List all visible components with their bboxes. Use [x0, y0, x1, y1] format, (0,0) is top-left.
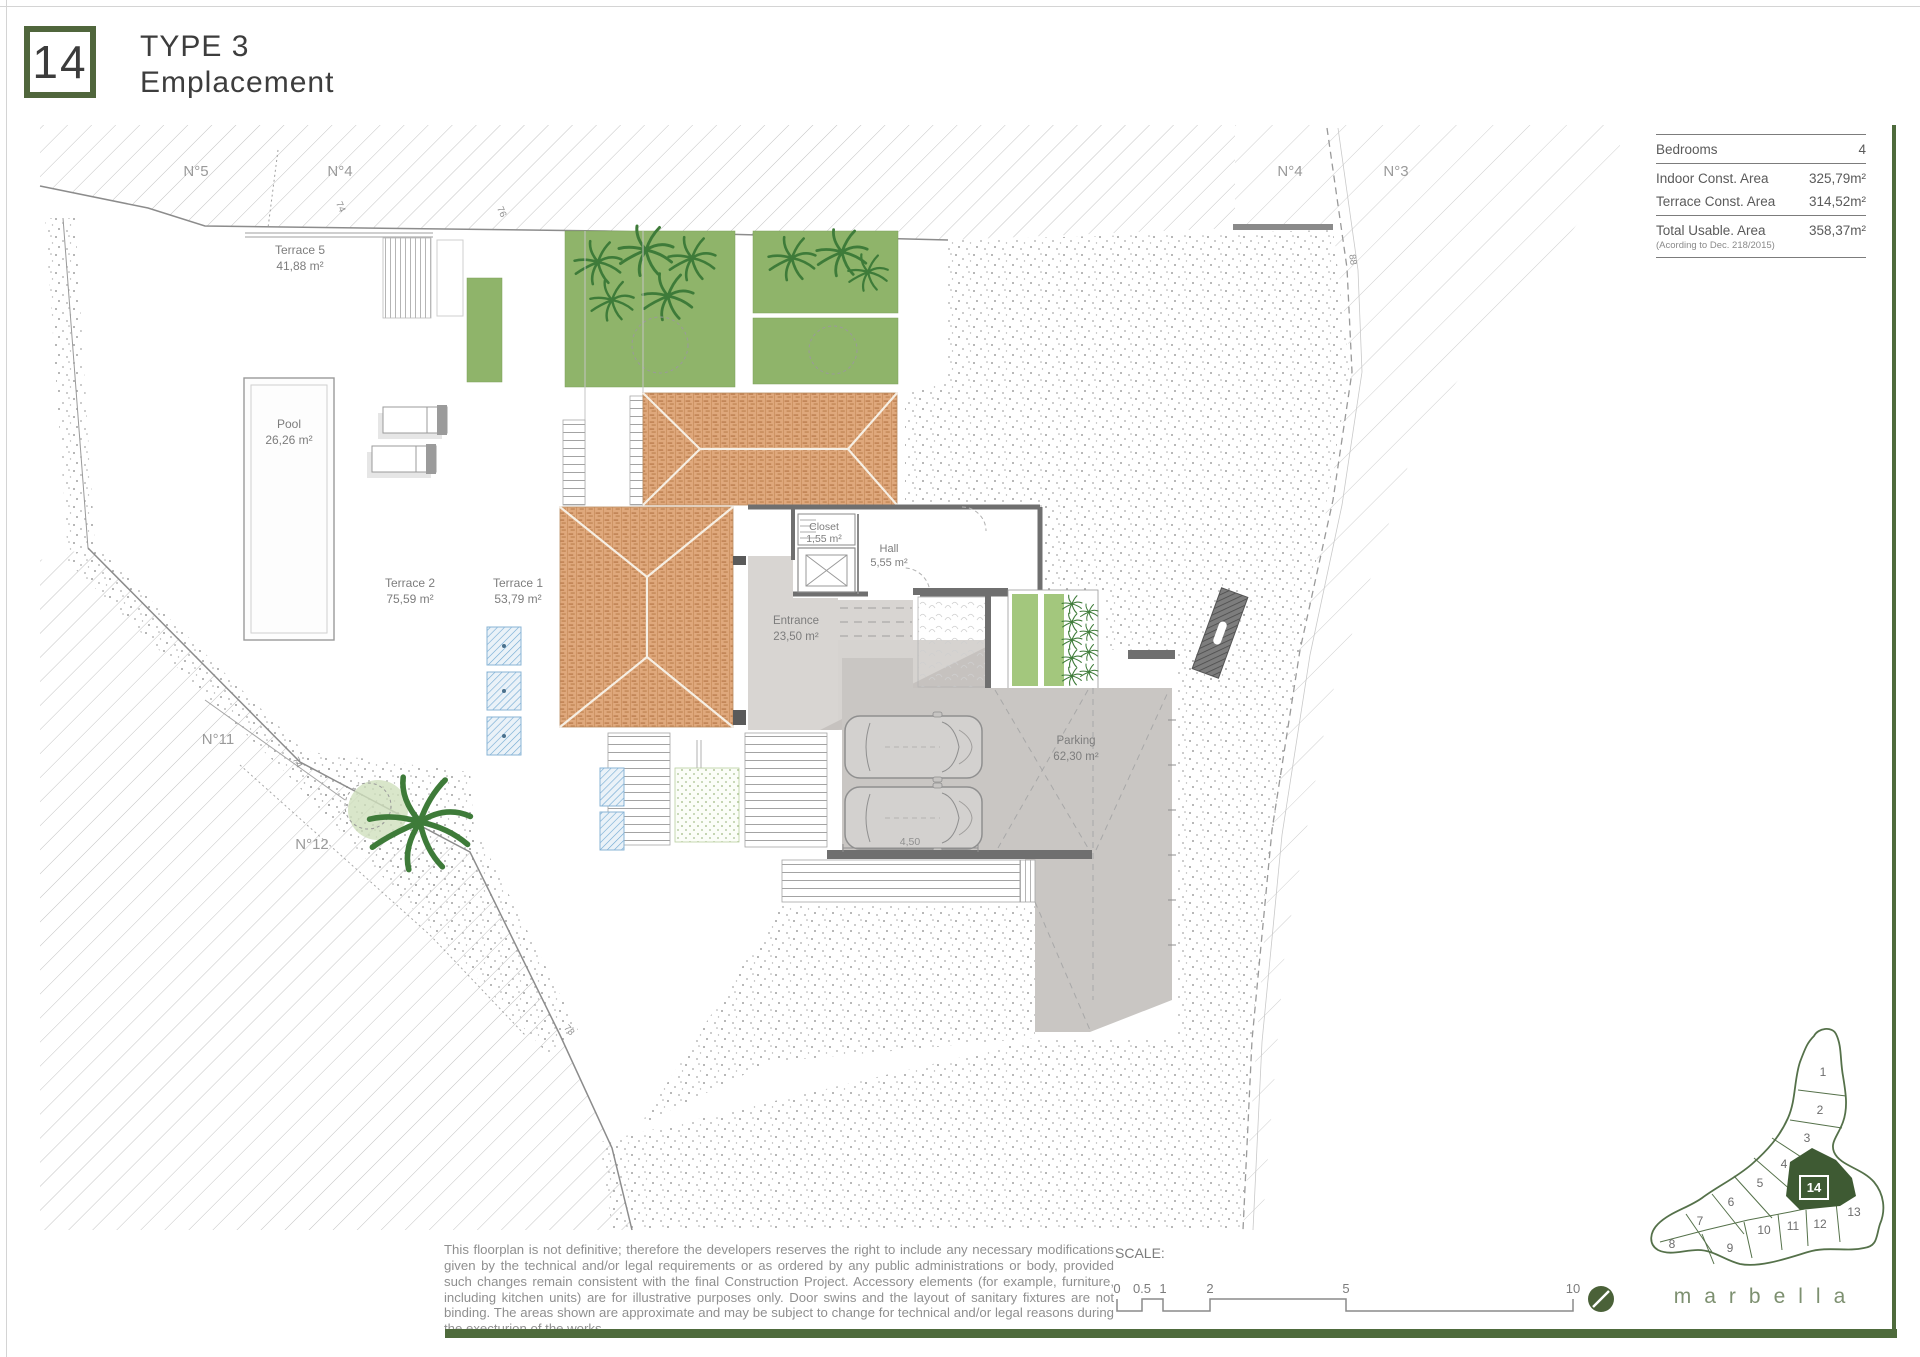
- scale-tick-0: 0: [1113, 1281, 1120, 1296]
- site-plan: N°5 N°4 N°4 N°3 N°11 N°12 Terrace 5 41,8…: [0, 0, 1920, 1357]
- green-footer-bar: [445, 1329, 1897, 1338]
- car: [845, 712, 982, 782]
- plot-label-n4-right: N°4: [1277, 163, 1302, 180]
- scale-tick-1: 1: [1159, 1281, 1166, 1296]
- room-label-pool-area: 26,26 m²: [265, 433, 312, 447]
- key-map-plot-5: 5: [1757, 1176, 1764, 1190]
- key-map-plot-2: 2: [1817, 1103, 1824, 1117]
- room-label-entrance-name: Entrance: [773, 615, 819, 627]
- key-map-plot-8: 8: [1669, 1237, 1676, 1251]
- north-indicator-icon: [1588, 1286, 1614, 1312]
- scale-label: SCALE:: [1115, 1245, 1165, 1261]
- room-label-entrance-area: 23,50 m²: [773, 631, 819, 643]
- pergola-slats: [383, 238, 431, 318]
- scale-tick-2: 2: [1206, 1281, 1213, 1296]
- key-map-plot-12: 12: [1813, 1217, 1827, 1231]
- room-label-terrace1-name: Terrace 1: [493, 576, 543, 590]
- key-map-plot-9: 9: [1727, 1241, 1734, 1255]
- room-label-terrace2-area: 75,59 m²: [386, 592, 433, 606]
- room-label-hall-name: Hall: [880, 543, 899, 555]
- room-label-hall-area: 5,55 m²: [870, 557, 908, 569]
- key-map-plot-1: 1: [1820, 1065, 1827, 1079]
- key-map-plot-3: 3: [1804, 1131, 1811, 1145]
- plot-label-n11: N°11: [202, 731, 234, 748]
- brand-logo-marbella: marbella: [1648, 1285, 1884, 1309]
- room-label-terrace5-name: Terrace 5: [275, 243, 325, 257]
- scale-tick-10: 10: [1566, 1281, 1580, 1296]
- dimension-right: 88: [1346, 254, 1358, 266]
- room-label-closet-area: 1,55 m²: [806, 533, 842, 545]
- plot-label-n4-left: N°4: [327, 163, 352, 180]
- disclaimer-text: This floorplan is not definitive; theref…: [444, 1242, 1114, 1337]
- key-map-plot-7: 7: [1697, 1214, 1704, 1228]
- plot-label-n12: N°12: [295, 836, 329, 853]
- key-map-highlight-number: 14: [1807, 1180, 1822, 1195]
- key-map: 1 2 3 4 5 6 7 8 9 10 11 12 13 14: [1651, 1029, 1883, 1265]
- room-label-parking-area: 62,30 m²: [1053, 751, 1099, 763]
- key-map-plot-6: 6: [1728, 1195, 1735, 1209]
- garden-areas: [467, 226, 898, 387]
- plot-label-n3: N°3: [1383, 163, 1408, 180]
- scale-tick-05: 0.5: [1133, 1281, 1151, 1296]
- room-label-terrace2-name: Terrace 2: [385, 576, 435, 590]
- sun-loungers: [367, 405, 447, 478]
- room-label-terrace5-area: 41,88 m²: [276, 259, 323, 273]
- key-map-plot-10: 10: [1757, 1223, 1771, 1237]
- planting-strip: [1008, 590, 1098, 690]
- key-map-plot-11: 11: [1787, 1219, 1800, 1233]
- scale-tick-5: 5: [1342, 1281, 1349, 1296]
- scale-bar: 0 0.5 1 2 5 10: [1113, 1281, 1614, 1312]
- plot-label-n5: N°5: [183, 163, 208, 180]
- key-map-plot-4: 4: [1781, 1157, 1788, 1171]
- room-label-closet-name: Closet: [809, 521, 839, 533]
- room-label-parking-name: Parking: [1057, 735, 1096, 747]
- room-label-terrace1-area: 53,79 m²: [494, 592, 541, 606]
- dimension-car-bay: 4,50: [900, 836, 921, 848]
- green-right-rule: [1892, 125, 1896, 1338]
- key-map-plot-13: 13: [1847, 1205, 1861, 1219]
- room-label-pool-name: Pool: [277, 417, 301, 431]
- planter: [437, 240, 463, 316]
